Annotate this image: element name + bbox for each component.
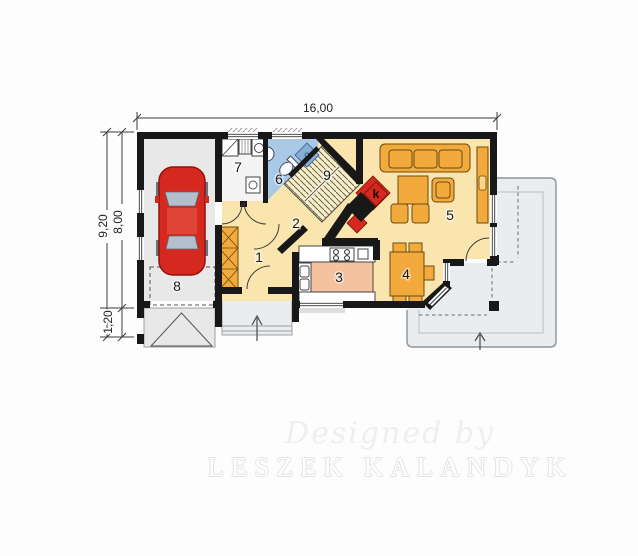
armchair-cushion	[436, 182, 450, 198]
car-roof	[167, 208, 197, 234]
entrance-porch	[222, 294, 292, 341]
floor-plan-drawing: k	[0, 0, 638, 556]
kitchen-sink-small	[358, 249, 368, 259]
wall-garage	[215, 139, 222, 301]
dim-left: 9,20 8,00 1,20	[96, 128, 134, 341]
sofa-cushion	[439, 150, 462, 168]
dim-top: 16,00	[133, 101, 501, 130]
car-rear-window	[166, 236, 198, 249]
wall-utility-bath	[263, 139, 268, 203]
sofa-cushion	[389, 150, 412, 168]
car	[155, 167, 209, 275]
dim-width-label: 16,00	[303, 101, 333, 115]
room-label-4: 4	[402, 266, 410, 282]
chair	[412, 204, 429, 223]
room-label-5: 5	[446, 207, 454, 223]
terrace-column	[489, 301, 499, 311]
wall-stub-hall	[240, 201, 247, 207]
sofa-cushion	[414, 150, 437, 168]
coffee-table	[398, 176, 428, 204]
window-sill	[295, 308, 345, 313]
floor-plan-page: k	[0, 0, 638, 556]
window-dining-east	[443, 263, 450, 281]
room-label-6: 6	[275, 171, 283, 187]
window-kitchen-south	[300, 301, 343, 308]
dim-main-label: 8,00	[111, 210, 125, 234]
room-label-1: 1	[255, 249, 263, 265]
window-garage-west-2	[137, 237, 144, 260]
room-label-7: 7	[234, 159, 242, 175]
wall-kitchen-west	[292, 252, 299, 301]
room-label-9: 9	[323, 167, 331, 183]
room-label-3: 3	[335, 269, 343, 285]
fireplace-label: k	[373, 187, 380, 201]
window-utility-north	[228, 128, 258, 139]
driveway	[144, 308, 215, 347]
window-living-east	[490, 195, 497, 256]
car-mirror	[205, 196, 209, 203]
chair	[391, 204, 408, 223]
dim-porch-label: 1,20	[101, 310, 115, 334]
driveway-floor	[144, 308, 215, 347]
dim-total-label: 9,20	[96, 214, 110, 238]
window-bath-north	[272, 128, 302, 139]
wall-living-west	[356, 139, 363, 184]
dining-chair	[424, 266, 434, 280]
window-garage-west-1	[137, 190, 144, 213]
room-label-8: 8	[173, 278, 181, 294]
cabinet-handle	[479, 176, 486, 190]
wall-dining-stub	[373, 240, 380, 260]
boiler	[246, 177, 260, 193]
wall-north	[137, 132, 497, 139]
car-mirror	[155, 196, 159, 203]
kitchen-counter-bottom	[299, 292, 375, 302]
room-label-2: 2	[292, 215, 300, 231]
car-windshield	[165, 192, 199, 206]
